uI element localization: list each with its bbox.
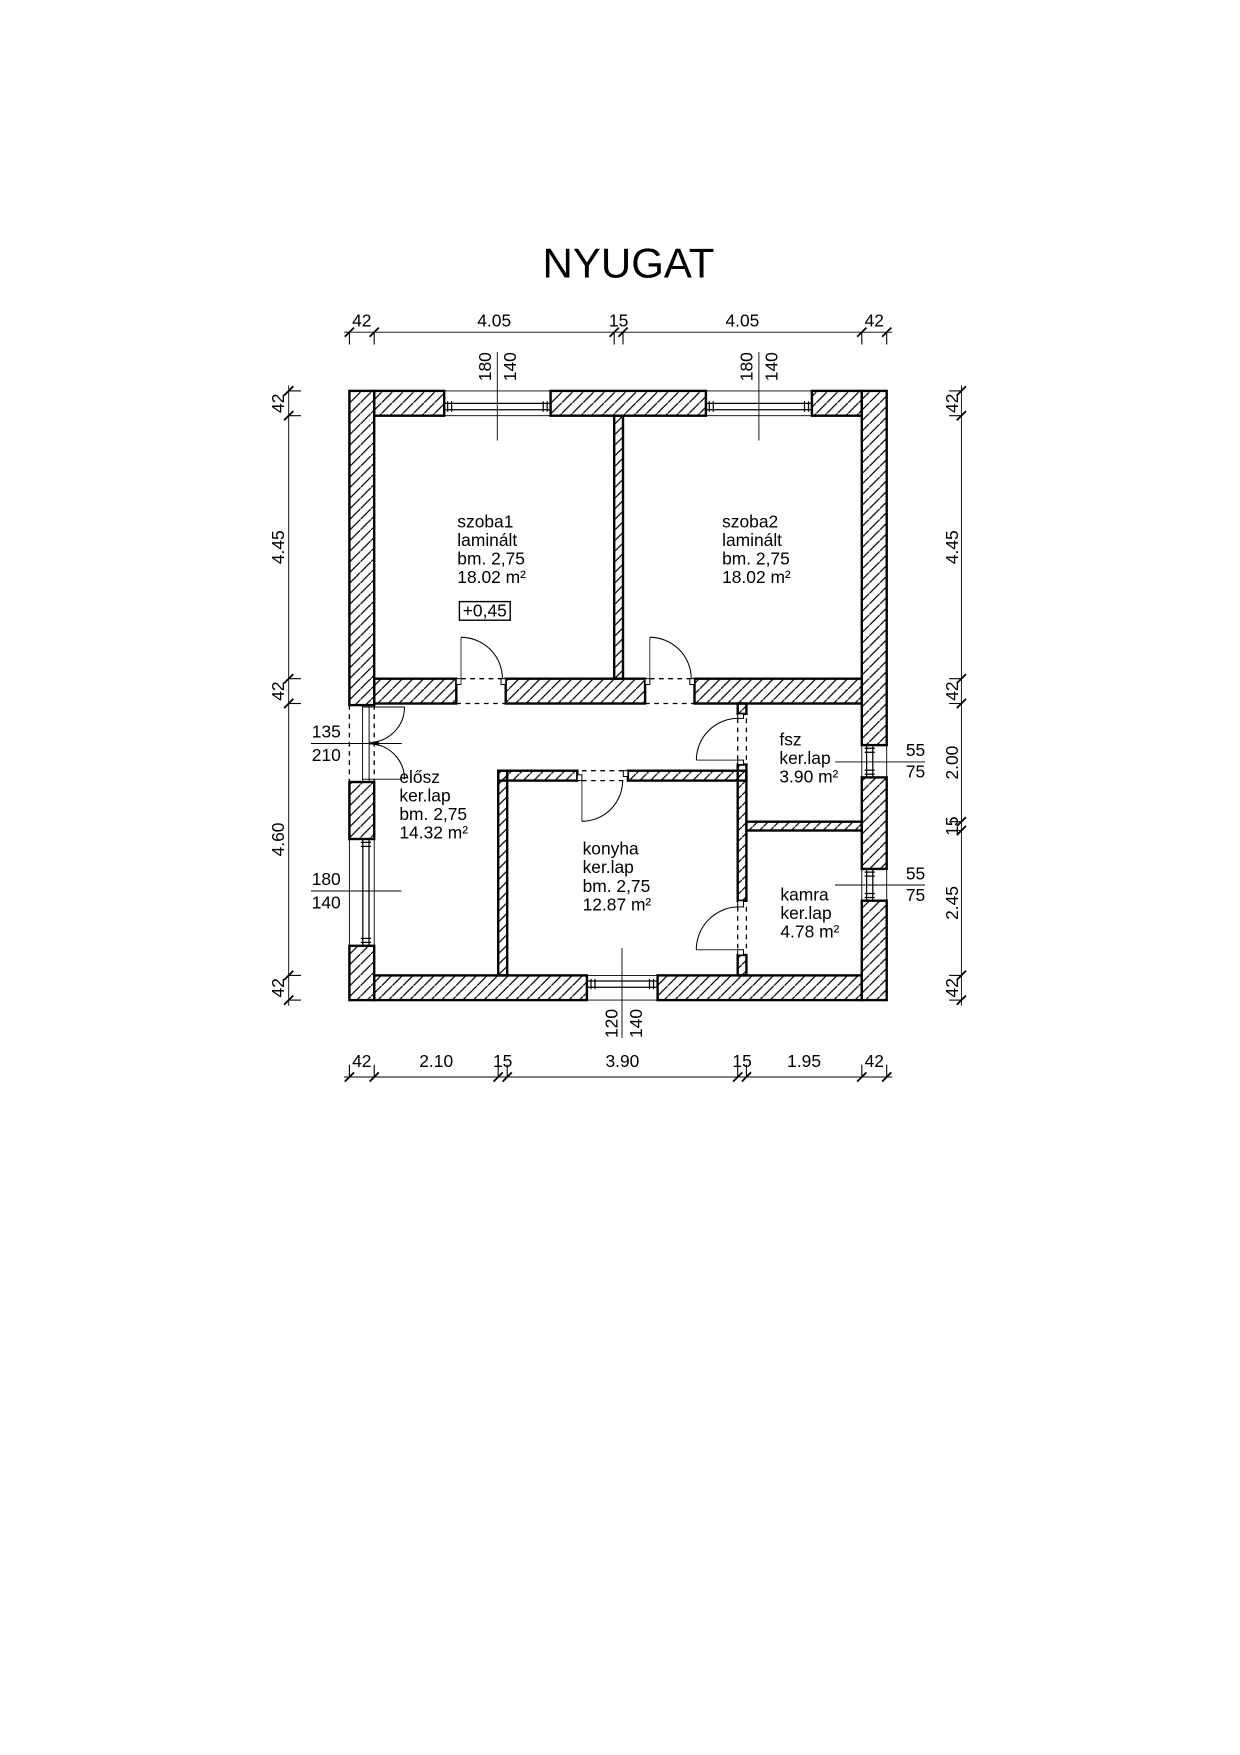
svg-text:180: 180 (737, 352, 757, 381)
svg-text:4.05: 4.05 (725, 311, 759, 331)
svg-text:ker.lap: ker.lap (583, 857, 634, 877)
svg-text:75: 75 (906, 762, 925, 782)
svg-text:4.60: 4.60 (268, 823, 288, 857)
svg-text:42: 42 (942, 394, 962, 413)
svg-text:laminált: laminált (457, 530, 517, 550)
svg-text:4.45: 4.45 (942, 530, 962, 564)
svg-text:42: 42 (942, 978, 962, 997)
svg-text:NYUGAT: NYUGAT (543, 240, 715, 287)
svg-text:140: 140 (762, 352, 782, 381)
svg-text:elősz: elősz (399, 767, 440, 787)
svg-text:2.00: 2.00 (942, 746, 962, 780)
svg-text:szoba1: szoba1 (457, 511, 513, 531)
svg-text:42: 42 (268, 681, 288, 700)
svg-text:55: 55 (906, 863, 925, 883)
svg-text:55: 55 (906, 740, 925, 760)
svg-text:2.45: 2.45 (942, 886, 962, 920)
svg-text:180: 180 (475, 352, 495, 381)
svg-text:fsz: fsz (779, 730, 801, 750)
svg-text:42: 42 (352, 1051, 371, 1071)
svg-text:210: 210 (312, 745, 341, 765)
svg-text:konyha: konyha (583, 839, 639, 859)
svg-text:laminált: laminált (722, 530, 782, 550)
svg-text:135: 135 (312, 722, 341, 742)
svg-text:12.87 m²: 12.87 m² (583, 894, 652, 914)
svg-text:bm. 2,75: bm. 2,75 (457, 549, 525, 569)
svg-text:kamra: kamra (780, 885, 829, 905)
svg-text:15: 15 (493, 1051, 512, 1071)
svg-text:42: 42 (268, 978, 288, 997)
svg-text:42: 42 (865, 311, 884, 331)
svg-text:bm. 2,75: bm. 2,75 (583, 876, 651, 896)
svg-text:1.95: 1.95 (787, 1051, 821, 1071)
svg-text:15: 15 (609, 311, 628, 331)
svg-text:14.32 m²: 14.32 m² (399, 823, 468, 843)
svg-text:3.90: 3.90 (605, 1051, 639, 1071)
svg-text:140: 140 (500, 352, 520, 381)
svg-text:140: 140 (626, 1009, 646, 1038)
svg-text:szoba2: szoba2 (722, 511, 778, 531)
svg-text:42: 42 (268, 394, 288, 413)
svg-text:15: 15 (942, 816, 962, 835)
svg-text:4.78 m²: 4.78 m² (780, 922, 839, 942)
svg-text:4.45: 4.45 (268, 530, 288, 564)
svg-text:bm. 2,75: bm. 2,75 (399, 804, 467, 824)
svg-text:+0,45: +0,45 (463, 600, 507, 620)
svg-text:140: 140 (312, 893, 341, 913)
svg-text:42: 42 (942, 681, 962, 700)
svg-text:2.10: 2.10 (419, 1051, 453, 1071)
svg-text:180: 180 (312, 869, 341, 889)
svg-text:18.02 m²: 18.02 m² (457, 567, 526, 587)
svg-text:3.90 m²: 3.90 m² (779, 767, 838, 787)
svg-text:ker.lap: ker.lap (780, 903, 831, 923)
svg-text:120: 120 (601, 1009, 621, 1038)
svg-text:42: 42 (352, 311, 371, 331)
svg-text:75: 75 (906, 885, 925, 905)
svg-text:ker.lap: ker.lap (779, 748, 830, 768)
svg-text:42: 42 (865, 1051, 884, 1071)
svg-text:ker.lap: ker.lap (399, 786, 450, 806)
svg-text:4.05: 4.05 (477, 311, 511, 331)
svg-text:18.02 m²: 18.02 m² (722, 567, 791, 587)
svg-text:bm. 2,75: bm. 2,75 (722, 549, 790, 569)
svg-text:15: 15 (732, 1051, 751, 1071)
